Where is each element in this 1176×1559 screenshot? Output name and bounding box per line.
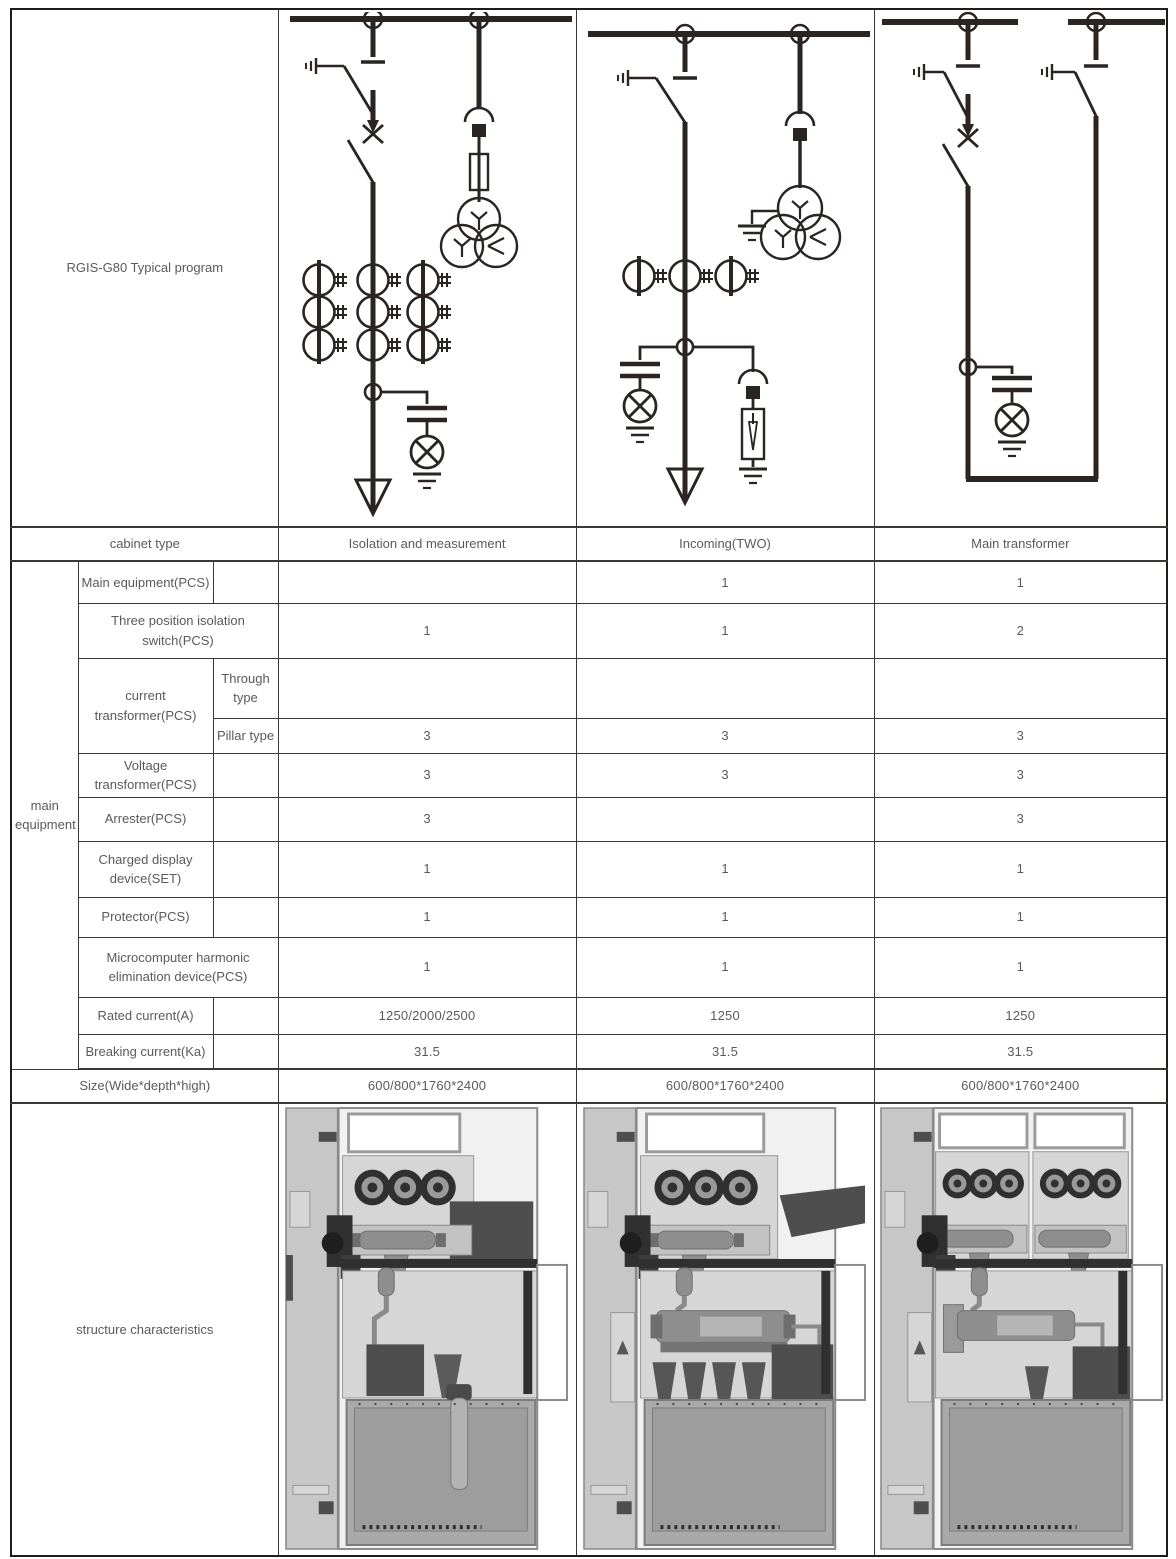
cell-value: 1 [278, 841, 576, 897]
row-sub-label: Through type [213, 658, 278, 718]
cell-value: 1 [576, 897, 874, 937]
single-line-diagram-isolation-measurement [282, 12, 577, 524]
cell-value: 3 [278, 797, 576, 841]
cell-value: 3 [278, 718, 576, 753]
row-label: Charged display device(SET) [78, 841, 213, 897]
cabinet-type-col-2: Incoming(TWO) [576, 527, 874, 561]
row-label: Arrester(PCS) [78, 797, 213, 841]
diagram-cell-incoming-two [576, 9, 874, 527]
spec-sheet: RGIS-G80 Typical program [0, 0, 1176, 1557]
program-title: RGIS-G80 Typical program [11, 9, 278, 527]
cell-value: 1 [874, 561, 1167, 603]
row-sub-empty [213, 897, 278, 937]
cell-value: 3 [874, 718, 1167, 753]
charged-display-device [960, 359, 1032, 456]
row-label: Protector(PCS) [78, 897, 213, 937]
three-position-isolation-switch [306, 19, 385, 184]
diagram-cell-main-transformer [874, 9, 1167, 527]
size-value: 600/800*1760*2400 [576, 1069, 874, 1103]
busbar [588, 25, 870, 43]
cell-value: 1250 [874, 997, 1167, 1034]
row-sub-empty [213, 561, 278, 603]
cell-value: 3 [576, 718, 874, 753]
size-label: Size(Wide*depth*high) [11, 1069, 278, 1103]
diagram-cell-isolation-measurement [278, 9, 576, 527]
row-sub-empty [213, 841, 278, 897]
cabinet-structure-image-3 [878, 1106, 1166, 1553]
charged-display-device [620, 347, 677, 442]
busbar-right [1068, 13, 1165, 31]
charged-display-device [365, 384, 447, 488]
cell-value: 1 [576, 603, 874, 658]
three-position-isolation-switch-left [914, 22, 980, 188]
row-sub-label: Pillar type [213, 718, 278, 753]
arrester-branch [693, 347, 767, 483]
cell-value: 3 [576, 753, 874, 797]
cell-value: 1 [278, 937, 576, 997]
single-line-diagram-main-transformer [878, 12, 1168, 524]
row-sub-empty [213, 997, 278, 1034]
cell-value [278, 658, 576, 718]
cell-value [576, 797, 874, 841]
cell-value: 1250 [576, 997, 874, 1034]
isolation-switch-right [1042, 22, 1108, 118]
cabinet-type-col-3: Main transformer [874, 527, 1167, 561]
row-label: Voltage transformer(PCS) [78, 753, 213, 797]
row-sub-empty [213, 1034, 278, 1069]
row-sub-empty [213, 753, 278, 797]
row-label: Microcomputer harmonic elimination devic… [78, 937, 278, 997]
busbar [290, 12, 572, 28]
cell-value: 1 [576, 561, 874, 603]
structure-label: structure characteristics [11, 1103, 278, 1556]
cabinet-type-col-1: Isolation and measurement [278, 527, 576, 561]
size-value: 600/800*1760*2400 [278, 1069, 576, 1103]
voltage-transformer-branch [441, 19, 517, 267]
current-transformers [303, 260, 451, 364]
voltage-transformer-branch [738, 34, 840, 259]
cabinet-structure-image-2 [581, 1106, 869, 1553]
size-value: 600/800*1760*2400 [874, 1069, 1167, 1103]
cell-value: 1 [278, 603, 576, 658]
structure-photo-main-transformer [874, 1103, 1167, 1556]
cabinet-structure-image-1 [283, 1106, 571, 1553]
cell-value: 1 [874, 897, 1167, 937]
bushings [355, 1170, 456, 1206]
row-label: Three position isolation switch(PCS) [78, 603, 278, 658]
cell-value: 31.5 [278, 1034, 576, 1069]
cell-value: 1 [874, 841, 1167, 897]
current-transformers [623, 256, 759, 296]
cell-value: 1250/2000/2500 [278, 997, 576, 1034]
row-label: Breaking current(Ka) [78, 1034, 213, 1069]
cell-value: 2 [874, 603, 1167, 658]
cell-value: 31.5 [576, 1034, 874, 1069]
isolation-switch [618, 34, 697, 124]
main-equipment-group-label: main equipment [11, 561, 78, 1069]
cell-value: 1 [576, 841, 874, 897]
cabinet-type-label: cabinet type [11, 527, 278, 561]
cell-value: 1 [874, 937, 1167, 997]
cell-value: 3 [874, 797, 1167, 841]
bushings [655, 1170, 758, 1206]
row-label: Main equipment(PCS) [78, 561, 213, 603]
busbar-left [882, 13, 1018, 31]
structure-photo-isolation-measurement [278, 1103, 576, 1556]
cell-value: 1 [278, 897, 576, 937]
cell-value: 3 [874, 753, 1167, 797]
row-sub-empty [213, 797, 278, 841]
row-label: Rated current(A) [78, 997, 213, 1034]
structure-photo-incoming-two [576, 1103, 874, 1556]
cell-value: 3 [278, 753, 576, 797]
cell-value [576, 658, 874, 718]
cell-value: 1 [576, 937, 874, 997]
spec-table: RGIS-G80 Typical program [10, 8, 1168, 1557]
single-line-diagram-incoming-two [580, 12, 875, 524]
cell-value: 31.5 [874, 1034, 1167, 1069]
cell-value [278, 561, 576, 603]
row-label: current transformer(PCS) [78, 658, 213, 753]
cell-value [874, 658, 1167, 718]
